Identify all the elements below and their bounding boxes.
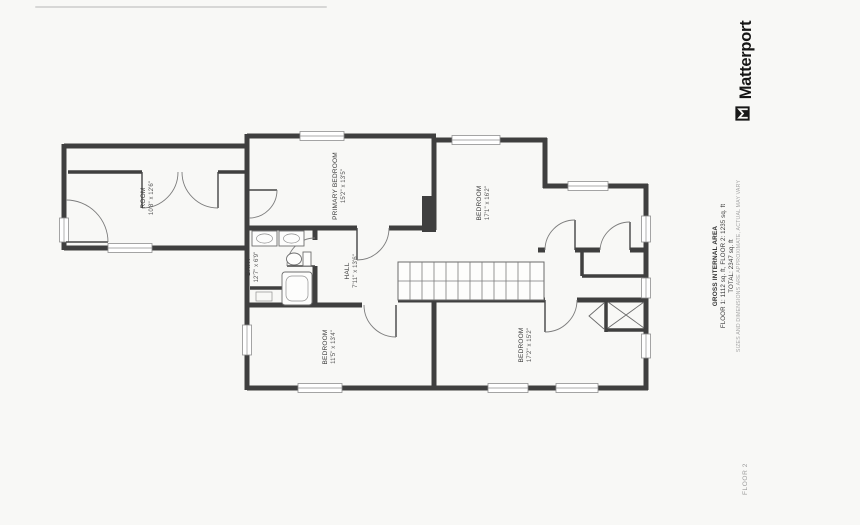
vanity-sink (252, 231, 277, 246)
window (243, 325, 252, 355)
room-label-hall: HALL 7'11" x 13'6" (344, 254, 359, 288)
room-dims-label: 12'7" x 6'9" (254, 252, 260, 283)
window (642, 334, 651, 358)
staircase (398, 262, 544, 300)
room-name-label: HALL (344, 262, 351, 279)
toilet-bowl (287, 253, 302, 265)
matterport-wordmark: Matterport (737, 21, 756, 100)
room-label-bedroom-bottom-left: BEDROOM 11'5" x 13'4" (322, 330, 337, 365)
room-dims-label: 17'1" x 16'2" (485, 186, 491, 220)
exterior-door (66, 200, 108, 242)
interior-door (249, 190, 277, 218)
floor-label: FLOOR 2 (739, 449, 751, 509)
area-floors-line: FLOOR 1: 1112 sq. ft, FLOOR 2: 1235 sq. … (720, 204, 727, 328)
bedroom-door (545, 220, 575, 250)
window (300, 132, 344, 141)
gross-internal-area-block: GROSS INTERNAL AREA FLOOR 1: 1112 sq. ft… (710, 181, 744, 351)
primary-bedroom-door (357, 228, 389, 260)
room-label-bedroom-bottom-right: BEDROOM 17'2" x 15'2" (518, 328, 533, 363)
room-dims-label: 7'11" x 13'6" (353, 254, 359, 288)
bathtub (282, 272, 312, 305)
room-name-label: BATH (245, 258, 252, 276)
area-title: GROSS INTERNAL AREA (712, 226, 719, 307)
room-name-label: ROOM (140, 187, 147, 208)
area-total-line: TOTAL: 2347 sq. ft (728, 239, 735, 293)
window (642, 278, 651, 298)
window (298, 384, 342, 393)
room-dims-label: 11'5" x 13'4" (331, 330, 337, 364)
window (452, 136, 500, 145)
window (488, 384, 528, 393)
bedroom-door (545, 300, 577, 332)
chimney-wall-block (422, 196, 436, 232)
cabinet (256, 292, 272, 301)
linen-closet (589, 302, 644, 329)
scanned-floor-plan-page: ROOM 10'8" x 12'6" PRIMARY BEDROOM 15'2"… (0, 0, 860, 525)
window (108, 244, 152, 253)
vanity-sink (279, 231, 304, 246)
room-dims-label: 15'2" x 13'5" (341, 169, 347, 203)
area-disclaimer: SIZES AND DIMENSIONS ARE APPROXIMATE, AC… (736, 180, 742, 352)
matterport-logo: Matterport (733, 3, 759, 123)
room-name-label: PRIMARY BEDROOM (332, 152, 339, 220)
bedroom-door (364, 305, 396, 337)
bath-fixtures (252, 231, 312, 305)
room-name-label: BEDROOM (322, 330, 329, 365)
room-dims-label: 17'2" x 15'2" (527, 328, 533, 362)
room-label-primary-bedroom: PRIMARY BEDROOM 15'2" x 13'5" (332, 152, 347, 220)
room-label-bedroom-top-right: BEDROOM 17'1" x 16'2" (476, 186, 491, 221)
room-dims-label: 10'8" x 12'6" (149, 181, 155, 215)
window (556, 384, 598, 393)
room-name-label: BEDROOM (476, 186, 483, 221)
window (568, 182, 608, 191)
room-name-label: BEDROOM (518, 328, 525, 363)
closet-door (600, 222, 630, 250)
toilet-tank (303, 252, 311, 266)
window (60, 218, 69, 242)
window (642, 216, 651, 242)
